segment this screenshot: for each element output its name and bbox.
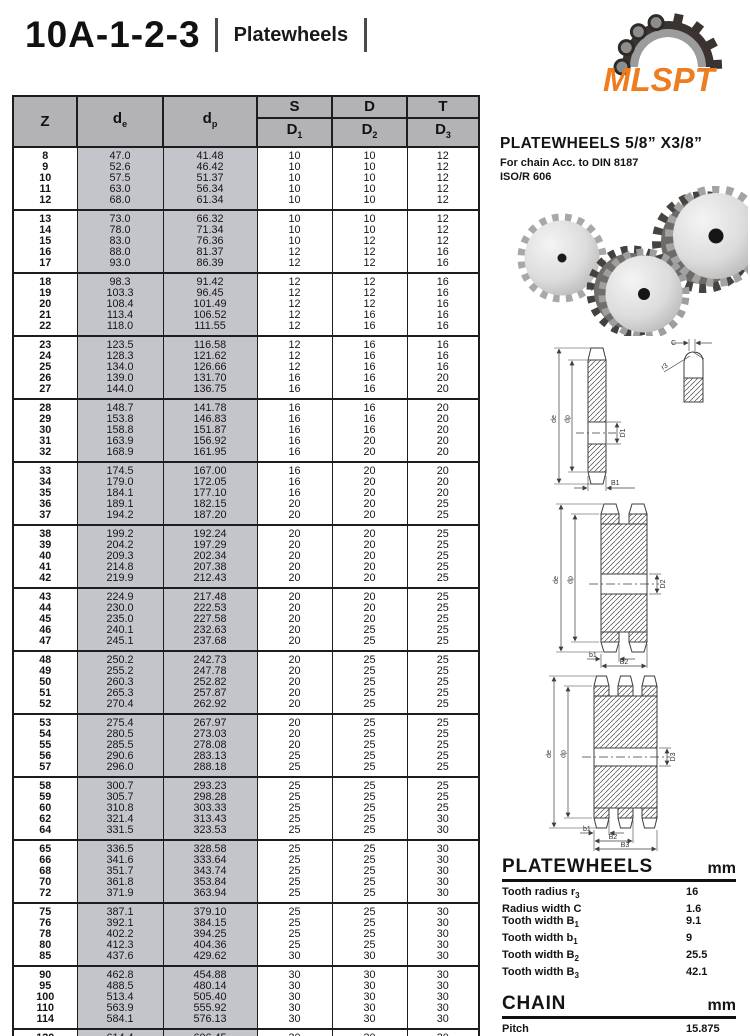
cell-d1: 30 (257, 1014, 332, 1029)
spec-label: Radius width C (502, 903, 686, 916)
col-header-d: D (332, 96, 407, 118)
table-row: 95488.5480.14303030 (13, 981, 479, 992)
table-row: 55285.5278.08202525 (13, 740, 479, 751)
spec-row: Radius width C1.6 (502, 903, 736, 916)
cell-z: 43 (13, 588, 77, 603)
cell-d1: 12 (257, 273, 332, 288)
cell-z: 8 (13, 147, 77, 162)
dim-label-de: de (551, 415, 558, 423)
cell-de: 148.7 (77, 399, 163, 414)
cell-d1: 25 (257, 888, 332, 903)
cell-de: 68.0 (77, 195, 163, 210)
product-subtitle-1: For chain Acc. to DIN 8187 (500, 156, 748, 170)
cell-d1: 30 (257, 966, 332, 981)
table-row: 50260.3252.82202525 (13, 677, 479, 688)
cell-d3: 30 (407, 966, 479, 981)
cell-z: 38 (13, 525, 77, 540)
cell-d1: 20 (257, 510, 332, 525)
cell-z: 65 (13, 840, 77, 855)
cell-z: 114 (13, 1014, 77, 1029)
cell-de: 331.5 (77, 825, 163, 840)
cell-d1: 10 (257, 210, 332, 225)
platewheel-specs-title: PLATEWHEELS (502, 856, 653, 878)
cell-d3: 16 (407, 321, 479, 336)
cell-de: 194.2 (77, 510, 163, 525)
cell-d1: 25 (257, 903, 332, 918)
table-row: 57296.0288.18252525 (13, 762, 479, 777)
cell-d3: 30 (407, 888, 479, 903)
table-row: 1583.076.36101212 (13, 236, 479, 247)
table-row: 1163.056.34101012 (13, 184, 479, 195)
cell-d1: 16 (257, 399, 332, 414)
cell-de: 296.0 (77, 762, 163, 777)
table-row: 24128.3121.62121616 (13, 351, 479, 362)
spec-label: Tooth width B2 (502, 949, 686, 966)
table-row: 34179.0172.05162020 (13, 477, 479, 488)
cell-dp: 66.32 (163, 210, 257, 225)
col-header-d1: D1 (257, 118, 332, 147)
table-row: 78402.2394.25252530 (13, 929, 479, 940)
spec-row: Tooth width B342.1 (502, 966, 736, 983)
table-row: 90462.8454.88303030 (13, 966, 479, 981)
cell-de: 250.2 (77, 651, 163, 666)
cell-dp: 141.78 (163, 399, 257, 414)
dim-label-d2: D2 (660, 579, 667, 588)
cell-d3: 20 (407, 384, 479, 399)
cell-z: 75 (13, 903, 77, 918)
product-subtitle-2: ISO/R 606 (500, 170, 748, 184)
cell-de: 199.2 (77, 525, 163, 540)
spec-row: Tooth width B225.5 (502, 949, 736, 966)
cell-d3: 20 (407, 399, 479, 414)
cell-dp: 242.73 (163, 651, 257, 666)
spec-value: 25.5 (686, 949, 736, 966)
dim-label-b1: b1 (583, 826, 591, 833)
cell-dp: 237.68 (163, 636, 257, 651)
cell-z: 13 (13, 210, 77, 225)
cell-de: 371.9 (77, 888, 163, 903)
col-header-dp: dp (163, 96, 257, 147)
dim-label-dp: dp (568, 576, 575, 584)
cell-z: 52 (13, 699, 77, 714)
cell-d1: 30 (257, 951, 332, 966)
table-row: 35184.1177.10162020 (13, 488, 479, 499)
table-group: 38199.2192.2420202539204.2197.2920202540… (13, 525, 479, 588)
table-row: 60310.8303.33252525 (13, 803, 479, 814)
cell-d2: 25 (332, 714, 407, 729)
cell-d1: 12 (257, 336, 332, 351)
table-row: 80412.3404.36252530 (13, 940, 479, 951)
cell-z: 12 (13, 195, 77, 210)
cell-d2: 16 (332, 384, 407, 399)
table-group: 65336.5328.5825253066341.6333.6425253068… (13, 840, 479, 903)
table-group: 58300.7293.2325252559305.7298.2825252560… (13, 777, 479, 840)
product-heading: PLATEWHEELS 5/8” X3/8” For chain Acc. to… (500, 135, 748, 184)
table-row: 26139.0131.70161620 (13, 373, 479, 384)
cell-dp: 136.75 (163, 384, 257, 399)
cell-d1: 10 (257, 147, 332, 162)
cell-d3: 20 (407, 462, 479, 477)
dim-label-d3: D3 (670, 752, 677, 761)
table-row: 37194.2187.20202025 (13, 510, 479, 525)
table-row: 1793.086.39121216 (13, 258, 479, 273)
cell-d3: 12 (407, 195, 479, 210)
triplex-section-icon: de dp D3 b1 B2 B3 (540, 668, 750, 854)
table-row: 21113.4106.52121616 (13, 310, 479, 321)
table-row: 100513.4505.40303030 (13, 992, 479, 1003)
table-row: 85437.6429.62303030 (13, 951, 479, 966)
table-row: 110563.9555.92303030 (13, 1003, 479, 1014)
cell-de: 174.5 (77, 462, 163, 477)
cell-d1: 12 (257, 321, 332, 336)
dim-label-d1: D1 (620, 428, 627, 437)
dim-label-b3: B3 (621, 842, 630, 849)
spec-label: Pitch (502, 1023, 686, 1036)
cell-dp: 454.88 (163, 966, 257, 981)
cell-dp: 61.34 (163, 195, 257, 210)
platewheel-table: Z de dp S D T D1 D2 D3 847.041.481010129… (12, 95, 480, 1036)
cell-z: 22 (13, 321, 77, 336)
cell-z: 64 (13, 825, 77, 840)
cell-d1: 20 (257, 525, 332, 540)
cell-d3: 25 (407, 651, 479, 666)
cell-de: 584.1 (77, 1014, 163, 1029)
cell-z: 47 (13, 636, 77, 651)
table-row: 28148.7141.78161620 (13, 399, 479, 414)
table-row: 29153.8146.83161620 (13, 414, 479, 425)
spec-value: 9 (686, 932, 736, 949)
table-row: 32168.9161.95162020 (13, 447, 479, 462)
cell-d2: 10 (332, 147, 407, 162)
cell-d1: 20 (257, 588, 332, 603)
drawing-triplex: de dp D3 b1 B2 B3 (540, 668, 750, 854)
sprocket-photo (492, 186, 748, 336)
cell-z: 17 (13, 258, 77, 273)
page-header: 10A-1-2-3 Platewheels (25, 14, 367, 56)
table-row: 52270.4262.92202525 (13, 699, 479, 714)
table-row: 19103.396.45121216 (13, 288, 479, 299)
cell-d3: 25 (407, 777, 479, 792)
cell-dp: 379.10 (163, 903, 257, 918)
catalog-page: 10A-1-2-3 Platewheels MLSPT (0, 0, 750, 1036)
cell-d3: 16 (407, 258, 479, 273)
col-header-de: de (77, 96, 163, 147)
spec-row: Tooth radius r316 (502, 886, 736, 903)
col-header-z: Z (13, 96, 77, 147)
platewheel-specs-rows: Tooth radius r316Radius width C1.6Tooth … (502, 886, 736, 983)
table-row: 75387.1379.10252530 (13, 903, 479, 918)
cell-z: 85 (13, 951, 77, 966)
cell-d1: 20 (257, 636, 332, 651)
table-row: 68351.7343.74252530 (13, 866, 479, 877)
cell-d2: 25 (332, 762, 407, 777)
table-row: 1898.391.42121216 (13, 273, 479, 288)
cell-dp: 41.48 (163, 147, 257, 162)
cell-d2: 25 (332, 888, 407, 903)
table-group: 847.041.48101012952.646.421010121057.551… (13, 147, 479, 210)
table-row: 1057.551.37101012 (13, 173, 479, 184)
cell-de: 275.4 (77, 714, 163, 729)
table-row: 33174.5167.00162020 (13, 462, 479, 477)
cell-d2: 16 (332, 336, 407, 351)
cell-d2: 16 (332, 321, 407, 336)
cell-de: 300.7 (77, 777, 163, 792)
table-row: 952.646.42101012 (13, 162, 479, 173)
table-row: 23123.5116.58121616 (13, 336, 479, 351)
cell-dp: 187.20 (163, 510, 257, 525)
cell-de: 73.0 (77, 210, 163, 225)
table-row: 847.041.48101012 (13, 147, 479, 162)
table-row: 36189.1182.15202025 (13, 499, 479, 510)
cell-d1: 25 (257, 777, 332, 792)
col-header-d3: D3 (407, 118, 479, 147)
cell-d2: 25 (332, 840, 407, 855)
dim-label-dp: dp (565, 415, 572, 423)
cell-dp: 262.92 (163, 699, 257, 714)
chain-specs-rows: Pitch15.875Internal width9.65Roller Φ10.… (502, 1023, 736, 1036)
table-row: 30158.8151.87161620 (13, 425, 479, 436)
cell-z: 120 (13, 1029, 77, 1036)
cell-de: 270.4 (77, 699, 163, 714)
cell-z: 72 (13, 888, 77, 903)
table-group: 90462.8454.8830303095488.5480.1430303010… (13, 966, 479, 1029)
table-row: 40209.3202.34202025 (13, 551, 479, 562)
table-row: 59305.7298.28252525 (13, 792, 479, 803)
cell-d2: 30 (332, 966, 407, 981)
duplex-section-icon: de dp D2 b1 B2 (545, 496, 750, 670)
brand-logo: MLSPT (602, 5, 748, 95)
chain-specs: CHAIN mm Pitch15.875Internal width9.65Ro… (502, 993, 736, 1036)
spec-value: 42.1 (686, 966, 736, 983)
cell-d2: 20 (332, 525, 407, 540)
cell-d2: 20 (332, 510, 407, 525)
chain-specs-title: CHAIN (502, 993, 566, 1015)
sprocket-chain-logo-icon: MLSPT (602, 5, 748, 95)
cell-de: 47.0 (77, 147, 163, 162)
cell-dp: 429.62 (163, 951, 257, 966)
cell-d3: 25 (407, 525, 479, 540)
cell-d3: 30 (407, 951, 479, 966)
cell-d1: 10 (257, 195, 332, 210)
table-row: 41214.8207.38202025 (13, 562, 479, 573)
table-row: 66341.6333.64252530 (13, 855, 479, 866)
cell-d3: 30 (407, 1029, 479, 1036)
cell-d2: 12 (332, 258, 407, 273)
page-title: 10A-1-2-3 (25, 14, 201, 56)
table-row: 22118.0111.55121616 (13, 321, 479, 336)
cell-z: 37 (13, 510, 77, 525)
table-row: 58300.7293.23252525 (13, 777, 479, 792)
cell-d2: 25 (332, 636, 407, 651)
platewheel-specs-unit: mm (708, 860, 736, 878)
spec-label: Tooth width B1 (502, 915, 686, 932)
cell-de: 387.1 (77, 903, 163, 918)
cell-d1: 20 (257, 651, 332, 666)
spec-label: Tooth width B3 (502, 966, 686, 983)
cell-de: 144.0 (77, 384, 163, 399)
cell-d3: 25 (407, 510, 479, 525)
col-header-d2: D2 (332, 118, 407, 147)
table-row: 43224.9217.48202025 (13, 588, 479, 603)
cell-d2: 25 (332, 777, 407, 792)
table-row: 1478.071.34101012 (13, 225, 479, 236)
cell-de: 93.0 (77, 258, 163, 273)
cell-z: 48 (13, 651, 77, 666)
table-group: 120614.4606.45303030125639.7631.51303030 (13, 1029, 479, 1036)
dim-label-dp: dp (561, 750, 568, 758)
cell-de: 123.5 (77, 336, 163, 351)
cell-d2: 25 (332, 699, 407, 714)
cell-d2: 25 (332, 651, 407, 666)
cell-de: 245.1 (77, 636, 163, 651)
cell-d1: 16 (257, 447, 332, 462)
cell-d3: 25 (407, 714, 479, 729)
cell-d2: 16 (332, 399, 407, 414)
col-header-t: T (407, 96, 479, 118)
cell-z: 57 (13, 762, 77, 777)
cell-d1: 25 (257, 825, 332, 840)
simplex-section-icon: de dp D1 B1 C r3 (545, 336, 750, 494)
cell-d2: 25 (332, 903, 407, 918)
cell-dp: 576.13 (163, 1014, 257, 1029)
cell-d1: 12 (257, 258, 332, 273)
table-row: 47245.1237.68202525 (13, 636, 479, 651)
cell-d2: 10 (332, 210, 407, 225)
spec-value: 9.1 (686, 915, 736, 932)
table-row: 54280.5273.03202525 (13, 729, 479, 740)
cell-d1: 30 (257, 1029, 332, 1036)
dim-label-de: de (546, 750, 553, 758)
cell-dp: 86.39 (163, 258, 257, 273)
cell-z: 33 (13, 462, 77, 477)
table-group: 43224.9217.4820202544230.0222.5320202545… (13, 588, 479, 651)
cell-de: 437.6 (77, 951, 163, 966)
cell-de: 614.4 (77, 1029, 163, 1036)
table-group: 48250.2242.7320252549255.2247.7820252550… (13, 651, 479, 714)
cell-dp: 111.55 (163, 321, 257, 336)
table-row: 70361.8353.84252530 (13, 877, 479, 888)
cell-dp: 116.58 (163, 336, 257, 351)
cell-de: 168.9 (77, 447, 163, 462)
cell-d3: 12 (407, 147, 479, 162)
cell-dp: 167.00 (163, 462, 257, 477)
dim-label-b1: B1 (611, 480, 620, 487)
spec-lists: PLATEWHEELS mm Tooth radius r316Radius w… (502, 856, 736, 1036)
dim-label-r3: r3 (660, 362, 669, 371)
spec-label: Tooth radius r3 (502, 886, 686, 903)
table-row: 56290.6283.13252525 (13, 751, 479, 762)
cell-d1: 25 (257, 840, 332, 855)
cell-de: 98.3 (77, 273, 163, 288)
cell-z: 58 (13, 777, 77, 792)
cell-dp: 328.58 (163, 840, 257, 855)
platewheel-specs-header: PLATEWHEELS mm (502, 856, 736, 882)
table-header: Z de dp S D T D1 D2 D3 (13, 96, 479, 147)
table-row: 38199.2192.24202025 (13, 525, 479, 540)
cell-d3: 25 (407, 573, 479, 588)
table-row: 51265.3257.87202525 (13, 688, 479, 699)
cell-d2: 25 (332, 825, 407, 840)
chain-specs-header: CHAIN mm (502, 993, 736, 1019)
table-row: 48250.2242.73202525 (13, 651, 479, 666)
dim-label-b1: b1 (589, 652, 597, 659)
cell-dp: 91.42 (163, 273, 257, 288)
product-title: PLATEWHEELS 5/8” X3/8” (500, 135, 748, 153)
table-row: 120614.4606.45303030 (13, 1029, 479, 1036)
cell-dp: 323.53 (163, 825, 257, 840)
table-row: 72371.9363.94252530 (13, 888, 479, 903)
cell-d2: 20 (332, 573, 407, 588)
cell-de: 224.9 (77, 588, 163, 603)
table-row: 53275.4267.97202525 (13, 714, 479, 729)
cell-d3: 16 (407, 273, 479, 288)
cell-d2: 20 (332, 447, 407, 462)
cell-dp: 161.95 (163, 447, 257, 462)
cell-dp: 267.97 (163, 714, 257, 729)
table-row: 65336.5328.58252530 (13, 840, 479, 855)
sprockets-image-icon (492, 186, 748, 336)
table-group: 1373.066.321010121478.071.341010121583.0… (13, 210, 479, 273)
spec-value: 15.875 (686, 1023, 736, 1036)
spec-row: Tooth width B19.1 (502, 915, 736, 932)
cell-d1: 16 (257, 384, 332, 399)
cell-d3: 20 (407, 447, 479, 462)
cell-d2: 20 (332, 588, 407, 603)
table-row: 114584.1576.13303030 (13, 1014, 479, 1029)
cell-dp: 288.18 (163, 762, 257, 777)
platewheel-specs: PLATEWHEELS mm Tooth radius r316Radius w… (502, 856, 736, 983)
cell-z: 90 (13, 966, 77, 981)
cell-d1: 20 (257, 699, 332, 714)
spec-label: Tooth width b1 (502, 932, 686, 949)
cell-z: 27 (13, 384, 77, 399)
table-row: 20108.4101.49121216 (13, 299, 479, 310)
cell-d3: 30 (407, 903, 479, 918)
cell-d3: 25 (407, 699, 479, 714)
cell-dp: 606.45 (163, 1029, 257, 1036)
category-label: Platewheels (215, 18, 368, 52)
spec-row: Tooth width b19 (502, 932, 736, 949)
cell-dp: 217.48 (163, 588, 257, 603)
cell-d1: 16 (257, 462, 332, 477)
cell-z: 32 (13, 447, 77, 462)
table-group: 23123.5116.5812161624128.3121.6212161625… (13, 336, 479, 399)
cell-de: 336.5 (77, 840, 163, 855)
cell-d2: 12 (332, 273, 407, 288)
cell-d2: 30 (332, 951, 407, 966)
chain-specs-unit: mm (708, 997, 736, 1015)
cell-z: 42 (13, 573, 77, 588)
cell-d1: 25 (257, 762, 332, 777)
cell-d3: 25 (407, 636, 479, 651)
table-row: 42219.9212.43202025 (13, 573, 479, 588)
cell-d3: 16 (407, 336, 479, 351)
table-row: 62321.4313.43252530 (13, 814, 479, 825)
table-row: 1688.081.37121216 (13, 247, 479, 258)
spec-value: 1.6 (686, 903, 736, 916)
logo-wordmark: MLSPT (603, 61, 718, 95)
cell-d2: 30 (332, 1014, 407, 1029)
cell-d2: 10 (332, 195, 407, 210)
cell-z: 53 (13, 714, 77, 729)
cell-d3: 30 (407, 840, 479, 855)
table-group: 53275.4267.9720252554280.5273.0320252555… (13, 714, 479, 777)
cell-d1: 20 (257, 714, 332, 729)
table-row: 39204.2197.29202025 (13, 540, 479, 551)
col-header-s: S (257, 96, 332, 118)
table-row: 25134.0126.66121616 (13, 362, 479, 373)
cell-d3: 30 (407, 1014, 479, 1029)
